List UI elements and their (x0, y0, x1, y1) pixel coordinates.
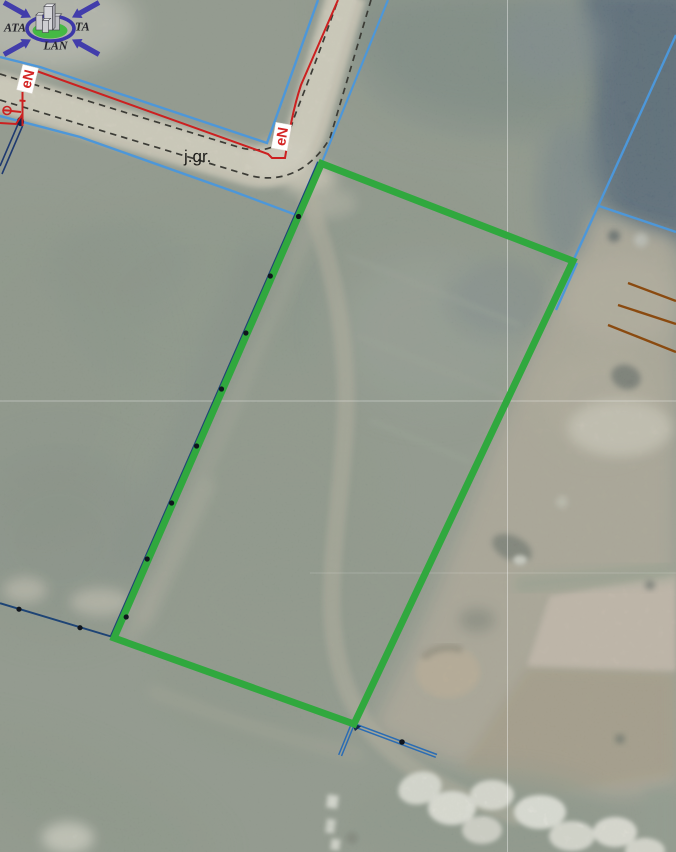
svg-text:j.gr.: j.gr. (183, 147, 211, 166)
svg-text:eN: eN (273, 126, 292, 147)
svg-text:ATA: ATA (3, 21, 26, 35)
svg-text:LAN: LAN (43, 39, 69, 53)
svg-text:TA: TA (75, 20, 90, 34)
